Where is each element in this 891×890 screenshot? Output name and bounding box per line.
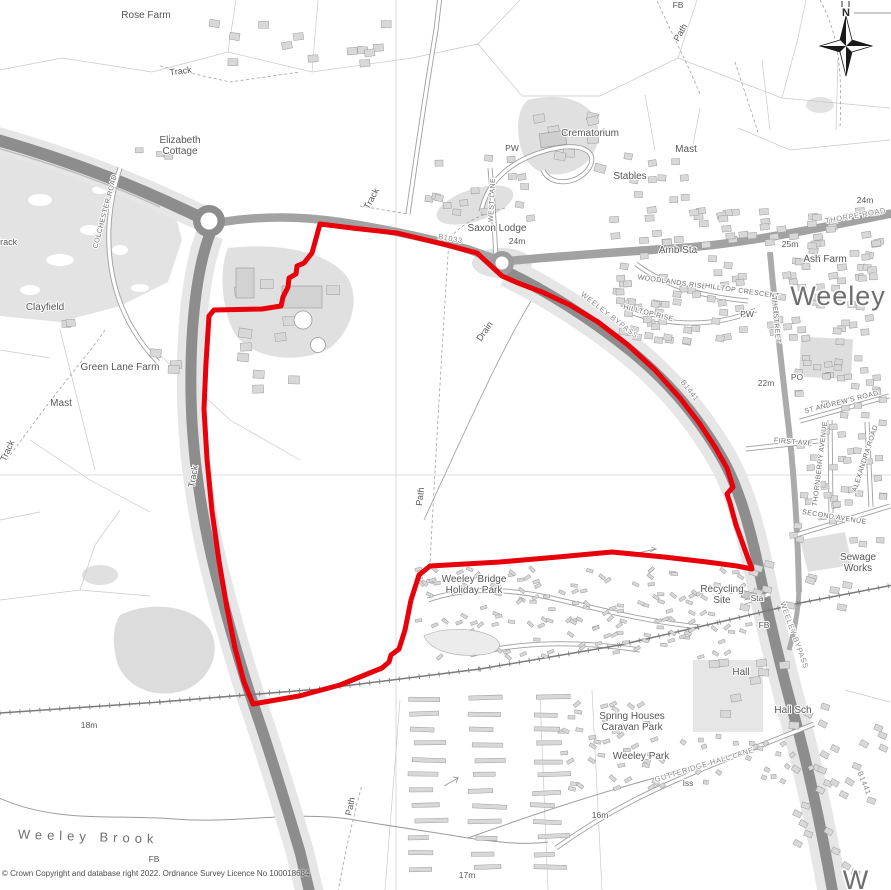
building [534,638,541,641]
building [508,173,516,179]
building [862,254,870,261]
building [792,317,801,324]
building [724,262,733,269]
building [789,334,797,340]
building [849,322,857,329]
building [471,188,479,194]
building [549,608,556,611]
building [736,279,745,286]
building [807,465,815,471]
building [260,280,273,289]
building [853,447,861,453]
building [850,250,859,256]
building [871,240,881,247]
building [571,584,578,587]
building [471,852,494,856]
building [360,59,371,67]
building [657,626,664,629]
building [517,578,524,582]
building [658,175,666,182]
building [609,216,618,223]
building [879,420,887,426]
building [691,325,700,332]
fuel-tank [294,311,312,329]
building [521,183,529,189]
building [833,501,841,507]
label-weeley-park: Weeley Park [613,751,671,762]
building [469,695,502,700]
building [709,661,719,668]
label-amb-sta: Amb Sta [659,245,698,256]
building [409,711,438,716]
building [415,818,448,823]
building [253,370,265,379]
building [237,353,249,362]
building [861,329,869,336]
building [673,299,682,306]
building [783,323,792,330]
label-n: N [842,7,850,19]
building [865,314,874,321]
building [840,412,848,418]
building [408,835,428,840]
map-canvas: Rose FarmTrackElizabethCottageFBPathCrem… [0,0,891,890]
building [728,630,735,633]
building [720,309,728,316]
building [572,601,579,604]
label-w: W [843,865,869,890]
building [663,334,672,341]
building [530,803,554,808]
label-track: Track [0,237,18,247]
building [692,291,701,298]
building [804,360,812,366]
building [229,32,240,40]
building [651,301,660,308]
building [66,319,76,327]
building [469,727,493,732]
building [671,572,678,575]
building [660,643,667,647]
building [876,537,884,543]
building [475,758,505,763]
building [699,220,709,227]
building [837,604,847,612]
building [568,715,575,719]
building [347,47,358,55]
building [834,365,842,371]
building [674,236,683,243]
building [765,239,775,246]
building [712,318,721,325]
building [879,494,887,500]
building [873,375,881,381]
building [812,214,821,221]
building [879,397,887,403]
building [733,741,739,746]
building [468,788,493,793]
building [813,364,821,370]
building [720,710,730,718]
label-24m: 24m [509,236,526,246]
building [855,356,863,362]
building [680,174,689,181]
building [412,803,439,808]
building [408,772,438,777]
building [867,266,877,273]
building [473,772,495,776]
building [802,335,811,342]
building [661,301,669,307]
building [716,335,725,342]
building [647,206,657,213]
building [409,850,433,855]
building [841,486,849,492]
building [526,215,535,222]
label-sta: Sta [751,593,764,603]
building [543,595,550,599]
building [412,758,445,763]
building [645,332,654,339]
building [410,727,434,732]
building [474,864,501,869]
fuel-tank [311,338,326,353]
building [745,622,752,626]
building [484,155,493,162]
building [671,159,679,165]
label-fb: FB [759,620,770,630]
building [228,59,238,66]
label-sewage-works: SewageWorks [840,552,877,574]
building [838,431,846,437]
building [874,475,882,481]
building [726,233,735,240]
building [829,424,837,430]
building [718,659,729,667]
building [875,455,883,461]
building [826,226,835,233]
building [275,332,287,341]
building [639,237,649,244]
building [851,383,859,389]
building [654,337,663,344]
hall-grounds [693,660,763,732]
label-mast: Mast [675,144,697,155]
building [620,263,629,270]
building [673,291,682,298]
building [830,464,838,470]
building [259,21,269,28]
building [681,194,689,200]
building [739,326,747,333]
building [534,760,562,764]
map-background [0,0,891,890]
building [645,215,654,222]
building [756,659,767,667]
building [824,361,832,367]
label-rose-farm: Rose Farm [121,10,170,21]
building [515,201,524,208]
building [844,374,852,380]
building [657,593,664,596]
building [842,320,850,326]
building [800,492,808,498]
building [828,272,838,279]
building [537,741,562,745]
building [790,532,798,538]
label-fb: FB [673,0,684,10]
label-crematorium: Crematorium [561,128,619,139]
building [738,273,746,279]
building [435,194,444,201]
building [623,280,631,287]
label-fb: FB [149,854,160,864]
building [858,433,866,439]
building [698,738,703,742]
building [750,676,761,684]
building [534,852,554,857]
building [703,780,708,784]
building [854,403,862,409]
building [168,365,179,373]
building [472,743,503,748]
building [758,669,768,677]
building [716,734,721,738]
building [468,819,501,824]
building [533,114,545,124]
building [861,412,869,418]
building [794,523,802,529]
label-weeley: Weeley [790,281,886,311]
label-spring-houses-caravan-park: Spring HousesCaravan Park [599,711,665,733]
building [414,740,446,745]
building [252,385,263,393]
building [776,752,782,757]
building [789,722,799,729]
label-18m: 18m [81,720,98,730]
building [409,867,432,872]
building [517,173,526,180]
building [507,156,516,163]
building [739,231,749,238]
building [534,713,557,718]
building [640,253,649,260]
label-17m: 17m [459,870,476,880]
building [718,215,728,222]
building [150,349,162,358]
building [538,772,571,777]
building [364,49,375,57]
building [824,492,832,498]
building [326,285,339,294]
building [701,241,711,248]
building [771,774,776,778]
label-weeley-bridge-holiday-park: Weeley BridgeHoliday Park [442,574,507,596]
label-iss: Iss [683,778,694,788]
building [409,697,440,702]
building [452,209,461,216]
building [714,270,722,276]
building [617,604,624,607]
building [611,232,621,239]
label-24m: 24m [857,195,874,205]
building [683,327,692,334]
building [598,753,605,757]
label-pw: PW [740,309,754,319]
building [534,727,560,732]
building [293,32,304,40]
building [747,232,756,239]
building [622,641,629,644]
label-ash-farm: Ash Farm [803,254,846,265]
building [807,220,817,227]
building [460,199,469,206]
os-map: Rose FarmTrackElizabethCottageFBPathCrem… [0,0,891,890]
building [209,19,220,28]
building [707,295,716,302]
building [240,343,251,352]
label-hall-sch: Hall Sch [774,705,811,716]
building [779,661,790,669]
building [722,225,732,232]
building [468,712,501,717]
building [530,600,537,603]
building [730,694,741,702]
building [861,231,871,238]
building [616,289,624,295]
building [860,367,868,373]
building [634,191,642,198]
building [288,376,299,384]
label-22m: 22m [758,378,775,388]
building [652,230,661,237]
building [651,323,659,329]
building [823,373,831,379]
building [135,148,143,153]
copyright-notice: © Crown Copyright and database right 202… [2,869,309,878]
building [648,176,657,183]
building [648,160,657,167]
building [782,271,791,278]
building [561,751,568,755]
building [796,391,804,397]
building [843,457,851,463]
label-green-lane-farm: Green Lane Farm [81,362,160,373]
building [760,223,770,230]
building [682,337,691,344]
building [842,405,850,411]
building [733,571,740,574]
label-16m: 16m [592,810,609,820]
label-25m: 25m [782,239,799,249]
building [534,865,567,870]
building [708,256,716,262]
building [435,160,443,166]
building [813,234,823,241]
building [409,788,433,792]
building [381,21,391,28]
label-saxon-lodge: Saxon Lodge [468,223,527,234]
building [836,339,844,345]
building [859,541,867,547]
building [866,380,874,386]
label-hall: Hall [732,667,749,678]
building [536,694,570,699]
building [617,275,625,282]
label-clayfield: Clayfield [26,302,64,313]
building [648,582,655,586]
building [835,359,843,365]
building [808,243,817,249]
building [670,197,678,203]
building [238,328,252,339]
label-pw: PW [505,143,519,153]
label-mast: Mast [50,398,72,409]
building [624,153,633,160]
building [869,274,877,280]
building [476,836,497,841]
label-stables: Stables [613,171,646,182]
label-elizabeth-cottage: ElizabethCottage [159,135,200,157]
building [443,202,451,208]
building [798,327,806,333]
building [833,328,842,335]
building [308,55,318,63]
building [850,537,858,543]
building [759,208,768,215]
building [373,44,383,52]
building [689,209,699,216]
building [837,375,845,381]
building [845,500,853,506]
building [718,299,727,306]
building [758,746,763,751]
building [777,226,787,233]
label-po: PO [791,372,804,382]
